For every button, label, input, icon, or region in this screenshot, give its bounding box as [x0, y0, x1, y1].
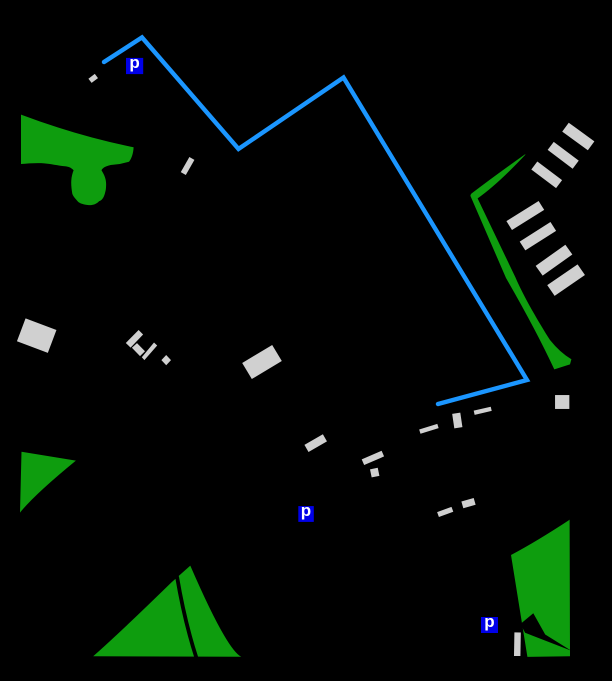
svg-text:p: p: [129, 53, 139, 72]
svg-text:p: p: [484, 612, 494, 631]
svg-text:p: p: [301, 501, 311, 520]
